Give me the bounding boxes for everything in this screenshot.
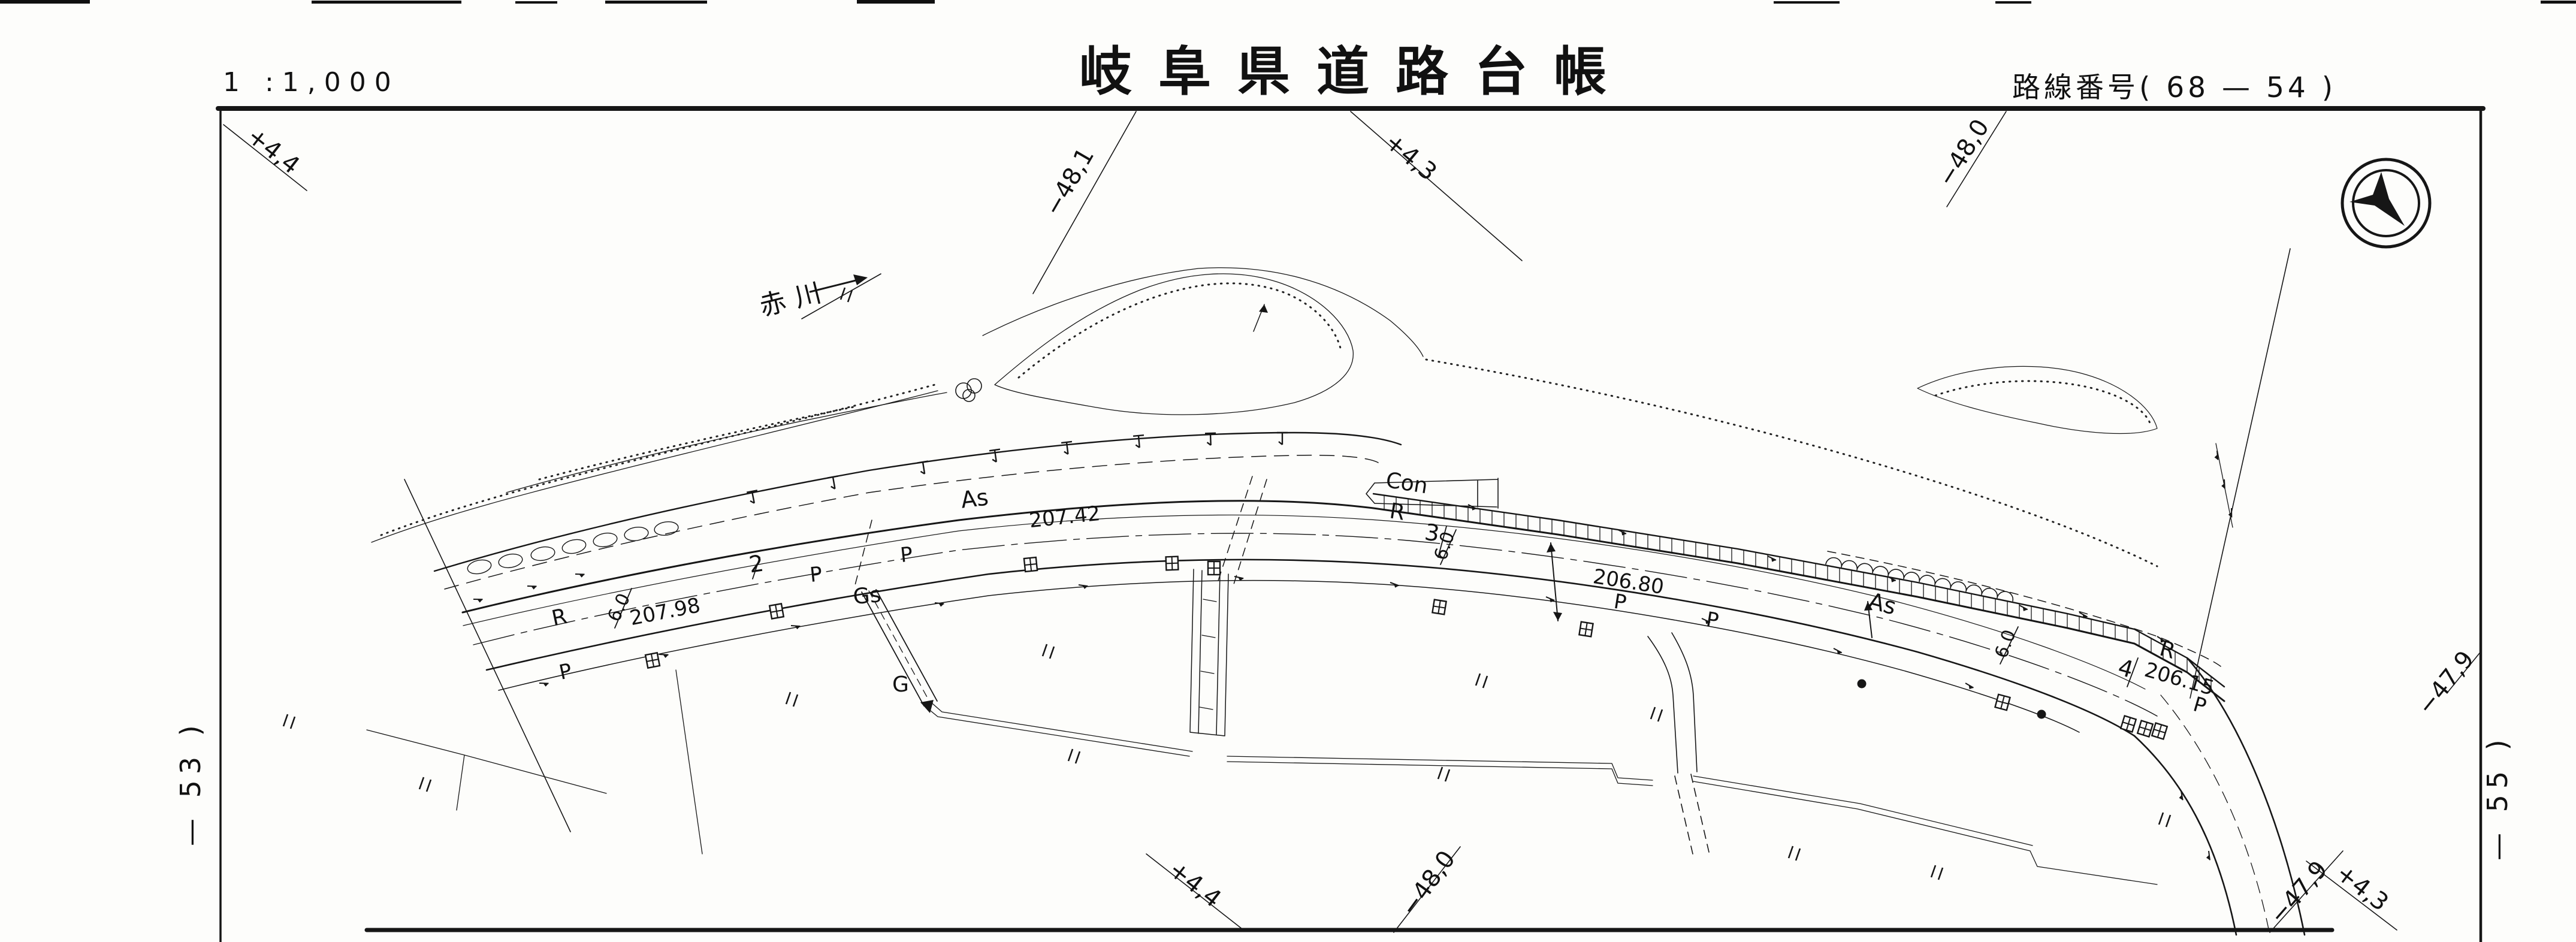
catch-basin-icon [1432, 600, 1446, 615]
ditto-mark-icon [1476, 674, 1487, 688]
tree-icon [956, 379, 982, 401]
hedge-scallops [1826, 558, 2013, 601]
levee [434, 433, 1401, 589]
riprap-rocks [466, 520, 679, 576]
slope-tick-icon [1545, 597, 1555, 603]
side-lane [1190, 569, 1228, 736]
grid-tick-lines [224, 111, 2480, 932]
catch-basin-icon [1024, 557, 1037, 572]
sheet-edge-label-right: — 55 ) [2481, 733, 2514, 861]
map-label: Con [1384, 468, 1430, 499]
ditto-mark-icon [2159, 813, 2170, 827]
map-label: 206.80 [1591, 564, 1666, 599]
utility-pole-icon [2037, 710, 2046, 719]
scale-label: 1 :1,000 [223, 67, 400, 98]
route-number-label: 路線番号( 68 — 54 ) [2012, 71, 2336, 104]
slope-tick-icon [1766, 556, 1776, 563]
grid-coordinate-labels: +4,4−48,1+4,3−48,0+4,4−48,0−47,9+4,3−47,… [242, 114, 2480, 929]
ditto-mark-icon [1931, 865, 1943, 880]
slope-tick-icon [2204, 851, 2212, 861]
main-road [463, 501, 2157, 736]
catch-basin-icon [2152, 723, 2167, 739]
catch-basin-icon [1208, 561, 1220, 575]
ditto-mark-icon [1789, 846, 1800, 861]
ditto-mark-icon [419, 777, 431, 792]
ditto-mark-icon [841, 288, 852, 302]
ditto-mark-icon [1438, 767, 1449, 781]
grid-coordinate-label: −48,0 [1396, 846, 1461, 921]
river-terrain [372, 268, 2157, 566]
grid-coordinate-label: +4,4 [1164, 856, 1227, 913]
ditto-mark-icon [1043, 644, 1054, 659]
guard-post-icon [917, 461, 930, 475]
sheet-edge-label-left: — 53 ) [174, 719, 207, 846]
map-label: 207.42 [1028, 502, 1101, 533]
map-label: R [1388, 499, 1406, 525]
catch-basin-icon [2121, 716, 2136, 732]
driveway [1648, 633, 1709, 854]
guard-post-icon [1133, 435, 1145, 448]
map-symbols [283, 288, 2234, 880]
slope-tick-icon [2018, 605, 2028, 612]
parcel-boundaries [367, 670, 2157, 884]
utility-pole-icon [1858, 680, 1867, 689]
guard-post-icon [1277, 433, 1288, 445]
map-label: Gs [852, 582, 882, 609]
grid-coordinate-label: +4,3 [1379, 128, 1442, 186]
grid-coordinate-label: −47,9 [2264, 856, 2333, 929]
catch-basin-icon [1995, 695, 2010, 710]
north-arrow-compass-icon [2342, 159, 2430, 247]
map-label: 206.15 [2142, 658, 2216, 701]
guard-post-icon [989, 449, 1002, 463]
grid-coordinate-label: +4,4 [242, 122, 305, 180]
map-label: P [2191, 692, 2209, 718]
map-label: R [549, 604, 569, 631]
ditto-mark-icon [1651, 707, 1662, 721]
road-exit [2134, 443, 2305, 935]
ditto-mark-icon [786, 692, 798, 707]
catch-basin-icon [1166, 557, 1179, 570]
scan-artifacts [0, 0, 2576, 4]
wall-bottom-line [1373, 508, 2224, 701]
grid-coordinate-label: −48,1 [1039, 143, 1100, 221]
catch-basin-icon [645, 653, 660, 668]
wall-top-line [1373, 494, 2224, 687]
grid-coordinate-label: −47,9 [2412, 646, 2480, 720]
ditto-mark-icon [1068, 749, 1080, 763]
ditto-mark-icon [283, 714, 295, 729]
river-name: 赤川 [756, 275, 833, 322]
slope-tick-icon [527, 584, 537, 591]
catch-basin-icon [2137, 721, 2153, 737]
map-label: P [1704, 608, 1720, 633]
slope-tick-icon [473, 597, 483, 603]
map-label: P [809, 562, 824, 587]
guard-post-icon [1061, 442, 1073, 455]
map-label: As [959, 484, 990, 513]
map-frame [218, 107, 2483, 942]
slope-tick-icon [575, 572, 585, 579]
map-label: 4 [2115, 654, 2136, 683]
map-label: 2 [747, 550, 765, 578]
grid-coordinate-label: +4,3 [2331, 859, 2394, 917]
slope-tick-icon [539, 681, 549, 688]
wall-rungs [1384, 496, 2211, 690]
station-ticks [615, 526, 2138, 687]
catch-basin-icon [769, 603, 784, 618]
road-ledger-sheet: 1 :1,000 岐阜県道路台帳 路線番号( 68 — 54 ) — 53 ) … [0, 0, 2576, 942]
map-label: G [892, 672, 909, 697]
guard-post-icon [828, 476, 840, 490]
page-title: 岐阜県道路台帳 [1079, 41, 1633, 102]
catch-basin-icon [1579, 622, 1593, 637]
map-label: P [557, 659, 574, 685]
map-label: P [899, 542, 914, 567]
retaining-wall [1373, 494, 2224, 701]
map-label: P [1612, 590, 1628, 615]
slope-tick-icon [791, 624, 801, 630]
